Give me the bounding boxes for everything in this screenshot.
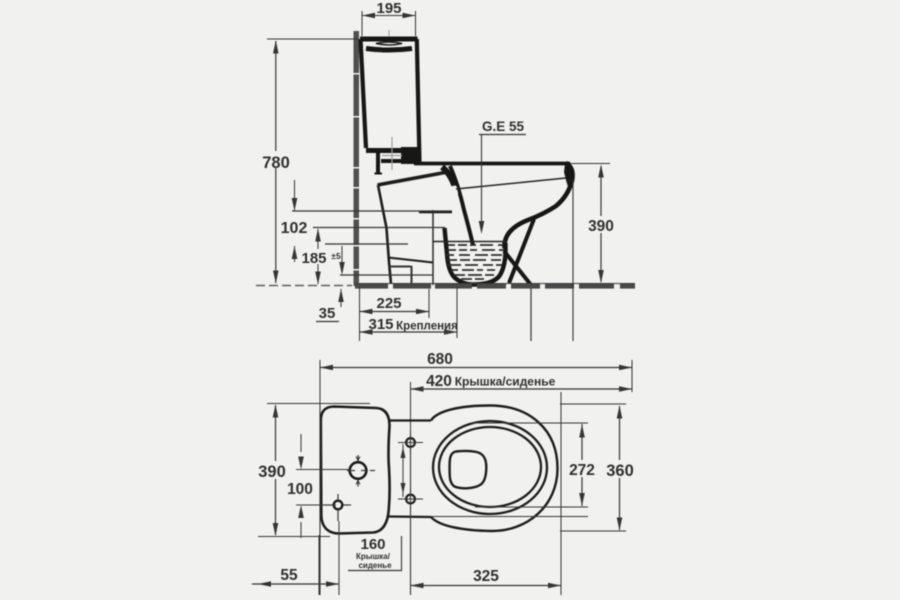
svg-text:420: 420 <box>426 373 452 390</box>
svg-text:390: 390 <box>258 463 286 481</box>
svg-text:325: 325 <box>473 568 499 585</box>
svg-text:780: 780 <box>262 154 290 172</box>
svg-text:Крепления: Крепления <box>396 321 458 333</box>
svg-text:±5: ±5 <box>331 251 341 261</box>
svg-text:102: 102 <box>281 220 308 237</box>
svg-text:315: 315 <box>368 316 393 333</box>
svg-text:100: 100 <box>287 481 313 498</box>
svg-text:Крышка/сиденье: Крышка/сиденье <box>455 375 556 389</box>
svg-text:G.E 55: G.E 55 <box>482 119 525 134</box>
svg-text:35: 35 <box>319 305 336 322</box>
svg-text:225: 225 <box>376 295 401 312</box>
svg-text:Крышка/: Крышка/ <box>356 552 391 561</box>
svg-text:55: 55 <box>280 567 298 584</box>
svg-text:272: 272 <box>569 462 595 479</box>
svg-text:195: 195 <box>376 0 401 17</box>
svg-text:185: 185 <box>301 250 326 267</box>
svg-text:сиденье: сиденье <box>358 561 392 570</box>
svg-text:160: 160 <box>360 536 385 553</box>
svg-text:680: 680 <box>427 351 453 368</box>
svg-text:360: 360 <box>606 462 634 480</box>
svg-text:390: 390 <box>588 218 614 235</box>
